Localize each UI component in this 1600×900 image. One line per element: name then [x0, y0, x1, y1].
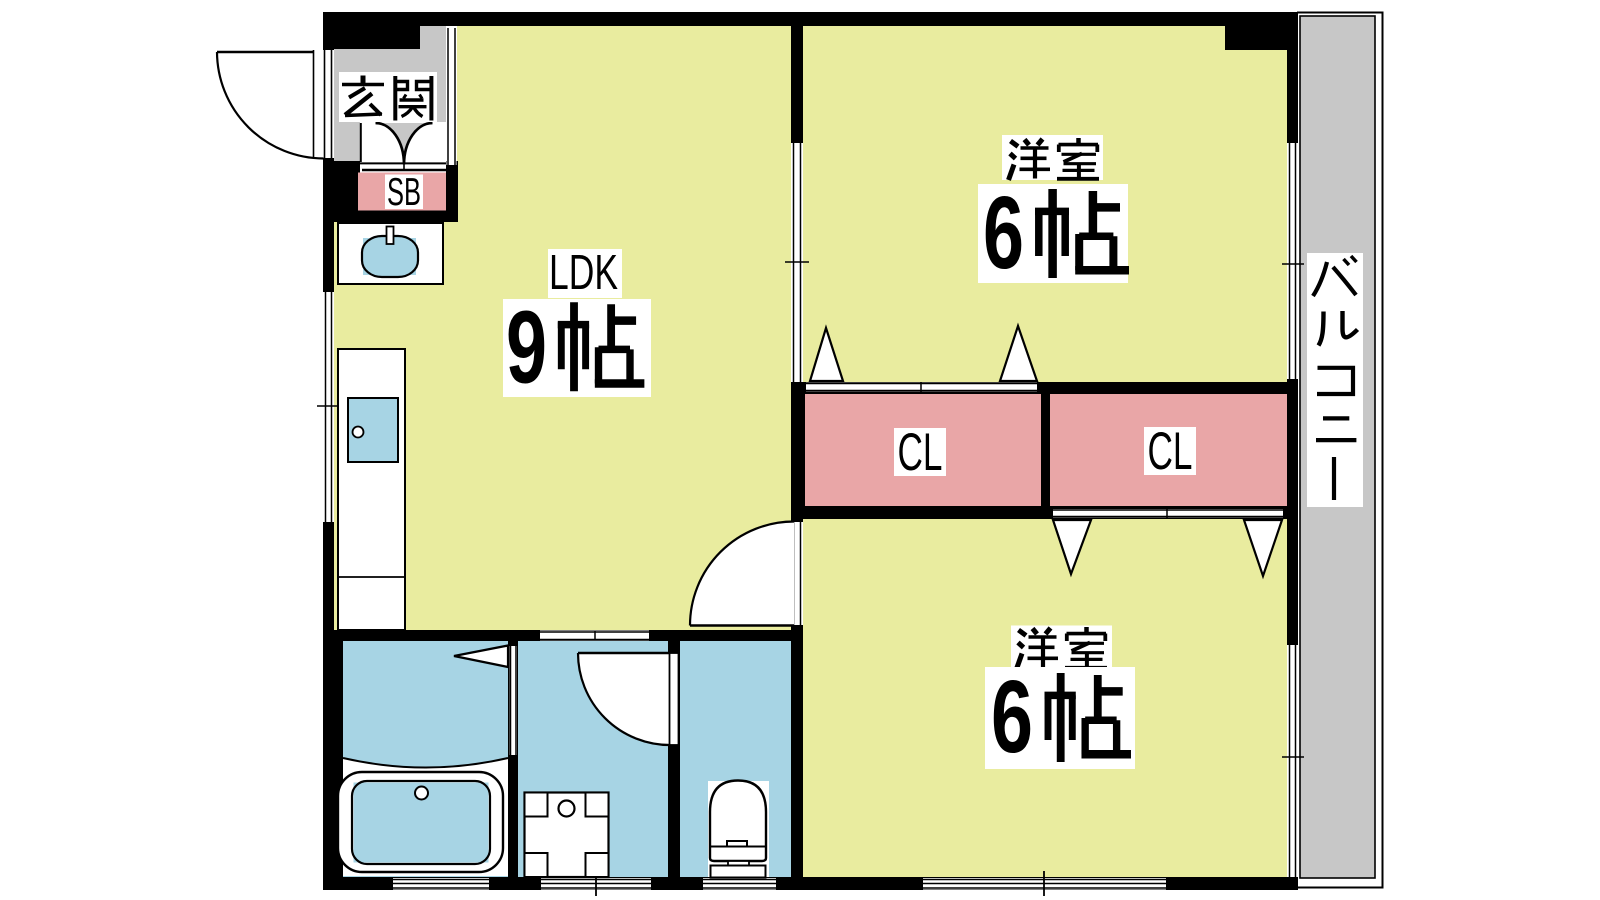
svg-text:SB: SB [387, 171, 421, 214]
svg-text:LDK: LDK [549, 246, 618, 300]
svg-text:CL: CL [1148, 422, 1193, 481]
svg-text:9: 9 [506, 290, 547, 405]
svg-text:CL: CL [898, 423, 943, 482]
svg-text:6: 6 [991, 659, 1033, 774]
svg-text:6: 6 [983, 175, 1024, 290]
